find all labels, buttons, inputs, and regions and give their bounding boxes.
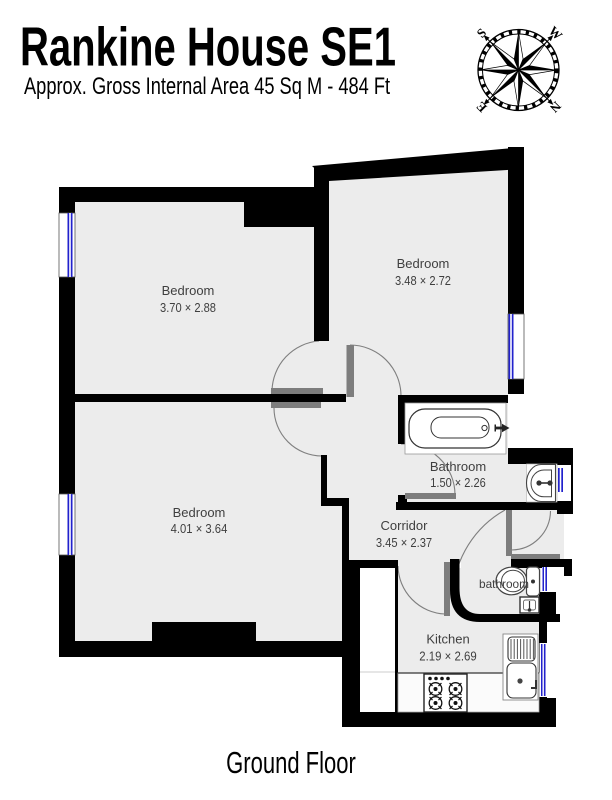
svg-text:3.48 × 2.72: 3.48 × 2.72 — [395, 273, 451, 288]
svg-text:3.70 × 2.88: 3.70 × 2.88 — [160, 300, 216, 315]
svg-text:Rankine House SE1: Rankine House SE1 — [20, 16, 396, 78]
svg-text:Approx. Gross Internal Area 45: Approx. Gross Internal Area 45 Sq M - 48… — [24, 71, 390, 99]
svg-text:1.50 × 2.26: 1.50 × 2.26 — [430, 475, 486, 490]
svg-text:bathroom: bathroom — [479, 577, 529, 591]
svg-text:Bedroom: Bedroom — [397, 256, 450, 271]
svg-text:Bedroom: Bedroom — [162, 283, 215, 298]
svg-text:Corridor: Corridor — [381, 518, 429, 533]
svg-text:4.01 × 3.64: 4.01 × 3.64 — [171, 521, 228, 536]
svg-text:Bedroom: Bedroom — [173, 505, 226, 520]
svg-text:2.19 × 2.69: 2.19 × 2.69 — [419, 649, 476, 664]
svg-text:Bathroom: Bathroom — [430, 459, 486, 474]
svg-text:Ground Floor: Ground Floor — [226, 745, 356, 780]
svg-text:3.45 × 2.37: 3.45 × 2.37 — [376, 535, 432, 550]
svg-text:Kitchen: Kitchen — [426, 632, 469, 647]
